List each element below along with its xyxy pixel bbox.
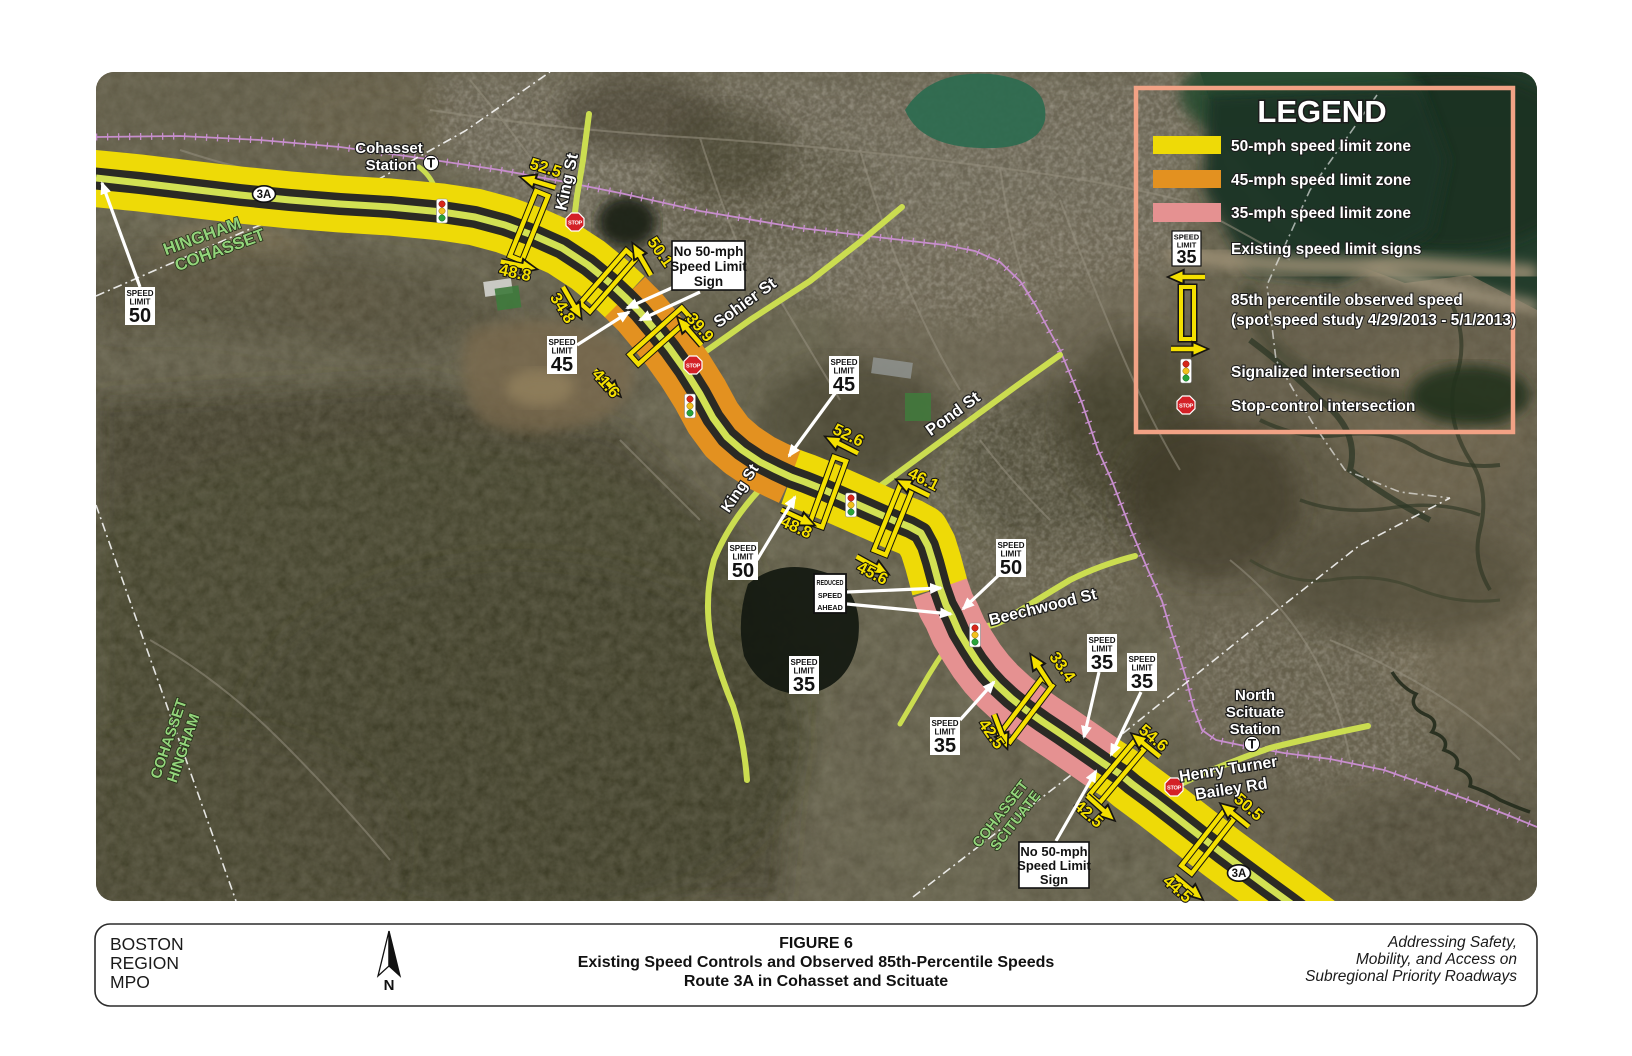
svg-text:AHEAD: AHEAD <box>817 603 843 612</box>
svg-text:Existing Speed Controls and Ob: Existing Speed Controls and Observed 85t… <box>578 954 1055 971</box>
svg-text:45: 45 <box>833 374 855 396</box>
svg-text:No 50-mph: No 50-mph <box>674 244 744 259</box>
svg-text:Sign: Sign <box>694 274 723 289</box>
svg-text:35: 35 <box>1176 247 1196 267</box>
svg-text:BOSTON: BOSTON <box>110 934 184 954</box>
svg-text:35: 35 <box>1091 652 1113 674</box>
svg-text:Cohasset: Cohasset <box>355 140 423 157</box>
svg-text:50-mph speed limit zone: 50-mph speed limit zone <box>1231 138 1411 155</box>
svg-text:Mobility, and Access on: Mobility, and Access on <box>1356 951 1517 968</box>
svg-text:Sign: Sign <box>1040 872 1068 887</box>
svg-text:Subregional Priority Roadways: Subregional Priority Roadways <box>1305 968 1517 985</box>
svg-text:50: 50 <box>1000 557 1022 579</box>
svg-text:FIGURE 6: FIGURE 6 <box>779 935 853 952</box>
svg-text:LEGEND: LEGEND <box>1257 94 1386 129</box>
svg-text:(spot speed study 4/29/2013 -: (spot speed study 4/29/2013 - 5/1/2013) <box>1231 312 1516 329</box>
svg-text:REDUCED: REDUCED <box>817 578 844 587</box>
svg-text:Speed Limit: Speed Limit <box>670 259 747 274</box>
svg-text:REGION: REGION <box>110 953 179 973</box>
svg-text:35: 35 <box>1131 671 1153 693</box>
svg-text:Station: Station <box>366 157 417 174</box>
svg-text:Stop-control intersection: Stop-control intersection <box>1231 398 1415 415</box>
svg-text:SPEED: SPEED <box>818 591 842 600</box>
svg-text:Speed Limit: Speed Limit <box>1017 858 1091 873</box>
svg-text:Signalized intersection: Signalized intersection <box>1231 364 1400 381</box>
svg-text:Station: Station <box>1230 721 1281 738</box>
svg-text:Addressing Safety,: Addressing Safety, <box>1387 934 1517 951</box>
svg-text:MPO: MPO <box>110 972 150 992</box>
svg-text:North: North <box>1235 687 1275 704</box>
svg-text:35: 35 <box>934 735 956 757</box>
svg-text:45-mph speed limit zone: 45-mph speed limit zone <box>1231 172 1411 189</box>
svg-text:35-mph speed limit zone: 35-mph speed limit zone <box>1231 205 1411 222</box>
svg-text:50: 50 <box>129 305 151 327</box>
svg-text:35: 35 <box>793 674 815 696</box>
svg-text:No 50-mph: No 50-mph <box>1020 844 1087 859</box>
svg-text:50: 50 <box>732 560 754 582</box>
svg-text:45: 45 <box>551 354 573 376</box>
svg-text:Scituate: Scituate <box>1226 704 1284 721</box>
svg-text:Existing speed limit signs: Existing speed limit signs <box>1231 241 1421 258</box>
svg-text:Route 3A in Cohasset and Scitu: Route 3A in Cohasset and Scituate <box>684 973 948 990</box>
svg-text:85th percentile observed speed: 85th percentile observed speed <box>1231 292 1463 309</box>
svg-text:N: N <box>384 977 395 994</box>
